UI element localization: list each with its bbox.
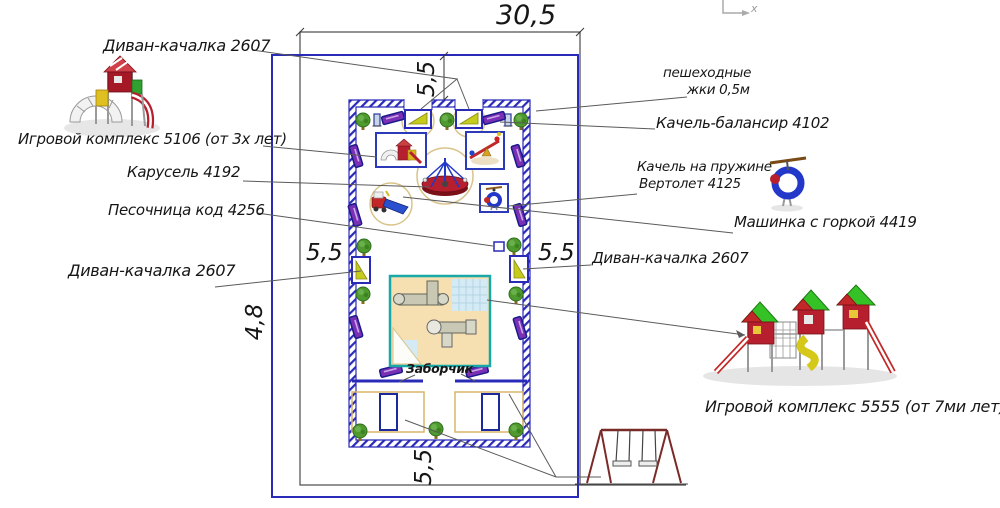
illustration-swing (575, 430, 688, 484)
label-pruzhina-line2: Вертолет 4125 (639, 177, 741, 192)
dim-offset-top: 5,5 (414, 54, 440, 104)
label-divan-left: Диван-качалка 2607 (68, 262, 235, 280)
plan-linework (0, 0, 1000, 508)
illustration-complex-5555 (703, 285, 897, 386)
label-divan-right: Диван-качалка 2607 (592, 250, 748, 267)
dim-offset-left: 5,5 (306, 240, 343, 266)
label-zaborchik: Заборчик (406, 362, 473, 376)
label-karusel: Карусель 4192 (127, 164, 240, 181)
label-peshehodnye-line2: жки 0,5м (687, 83, 750, 98)
central-play-structure-plan (390, 276, 490, 366)
label-pruzhina-line1: Качель на пружине (637, 160, 772, 175)
inset-seesaw (466, 132, 504, 169)
inset-complex-5106 (376, 133, 426, 167)
label-pesochnitsa: Песочница код 4256 (108, 202, 265, 219)
toy-car-slide-symbol (372, 191, 408, 214)
label-balansir: Качель-балансир 4102 (656, 115, 829, 132)
dim-site-width: 30,5 (496, 0, 556, 31)
corner-axis-x-label: x (751, 2, 758, 15)
label-complex-5555: Игровой комплекс 5555 (от 7ми лет) (705, 398, 1000, 416)
corner-axis-symbol (723, 0, 750, 16)
carousel-symbol (422, 158, 468, 196)
dim-offset-right: 5,5 (538, 240, 575, 266)
illustration-complex-5106 (64, 56, 160, 137)
dim-site-height: 4,8 (242, 297, 268, 347)
illustration-helicopter (770, 158, 806, 212)
sandbox-symbol (494, 242, 504, 251)
label-divan-top: Диван-качалка 2607 (103, 37, 270, 55)
dim-offset-bottom: 5,5 (411, 442, 437, 492)
label-mashinka: Машинка с горкой 4419 (734, 214, 917, 231)
label-complex-5106: Игровой комплекс 5106 (от 3х лет) (18, 131, 287, 148)
label-peshehodnye-line1: пешеходные (663, 66, 751, 81)
playground-plan-canvas: 30,5 5,5 5,5 5,5 4,8 5,5 Диван-качалка 2… (0, 0, 1000, 508)
